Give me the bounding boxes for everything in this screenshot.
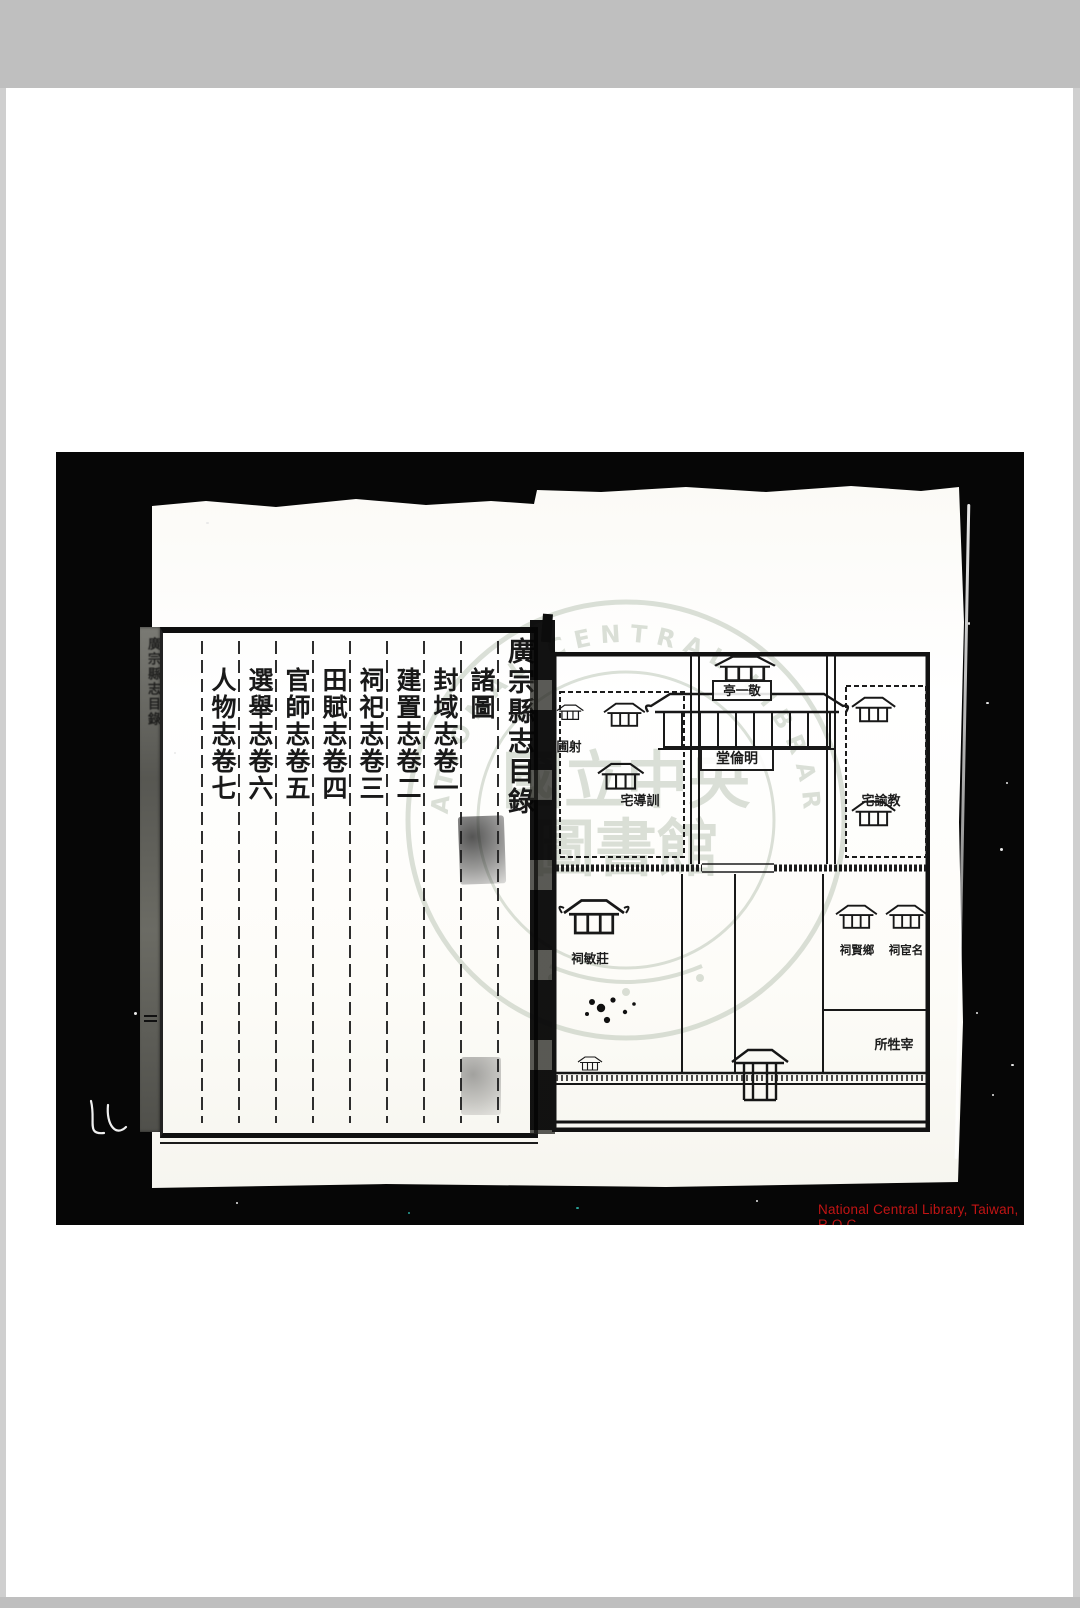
viewer-right-edge <box>1073 88 1080 1597</box>
dust-speck-cyan <box>408 1212 410 1214</box>
toc-entry: 諸圖 <box>463 667 499 721</box>
viewer-bottom-band <box>0 1597 1080 1608</box>
map-label-director-house: 宅諭教 <box>854 790 908 809</box>
dust-speck <box>206 522 209 524</box>
dust-speck <box>756 1200 758 1202</box>
spine-title-text: 廣宗縣志目錄 <box>143 637 161 727</box>
toc-entry: 祠祀志卷三 <box>352 667 388 802</box>
column-rule <box>201 641 203 1123</box>
viewer-page: NATIONAL CENTRAL LIBRARY 國立中央 圖書館 廣宗縣志目錄 <box>0 0 1080 1608</box>
toc-entry: 官師志卷五 <box>278 667 314 802</box>
viewer-left-edge <box>0 88 6 1597</box>
dust-speck <box>174 752 176 754</box>
spine-page-mark <box>144 1015 157 1017</box>
book-spine-strip: 廣宗縣志目錄 <box>140 627 162 1132</box>
dust-speck-cyan <box>576 1207 579 1209</box>
map-label-archery-ground: 圃射 <box>554 736 584 755</box>
map-label-xiangxian-shrine: 祠賢鄉 <box>832 942 882 958</box>
map-label-pavilion: 亭一敬 <box>712 680 772 701</box>
map-label-instructor-house: 宅導訓 <box>610 790 670 809</box>
dust-speck <box>236 1202 238 1204</box>
map-label-zhuangmin-shrine: 祠敏莊 <box>558 948 622 967</box>
toc-text-frame: 廣宗縣志目錄 諸圖 封域志卷一 建置志卷二 祠祀志卷三 田賦志卷四 官師志卷五 … <box>160 627 538 1138</box>
scanned-book-image: NATIONAL CENTRAL LIBRARY 國立中央 圖書館 廣宗縣志目錄 <box>56 452 1024 1225</box>
school-temple-map: 亭一敬 堂倫明 圃射 宅導訓 宅諭教 祠敏莊 祠賢鄉 祠宦名 所牲宰 <box>552 652 930 1132</box>
toc-entry: 選舉志卷六 <box>241 667 277 802</box>
map-label-minghuan-shrine: 祠宦名 <box>882 942 930 958</box>
ink-smudge <box>461 1057 501 1115</box>
dust-speck <box>992 1094 994 1096</box>
viewer-top-band <box>0 0 1080 88</box>
dust-speck <box>1006 782 1008 784</box>
ink-blotches <box>585 997 636 1023</box>
white-scratch-mark <box>84 1097 130 1145</box>
toc-entry: 建置志卷二 <box>389 667 425 802</box>
map-label-hall: 堂倫明 <box>700 748 774 771</box>
dust-speck <box>1011 1064 1014 1066</box>
map-drawing <box>552 652 930 1132</box>
dust-speck <box>976 1012 978 1014</box>
toc-entry: 田賦志卷四 <box>315 667 351 802</box>
cut-glyph-fragment <box>541 614 553 643</box>
library-credit-text: National Central Library, Taiwan, R.O.C. <box>818 1202 1024 1225</box>
dust-speck <box>986 702 989 704</box>
dust-speck <box>968 622 970 625</box>
map-label-slaughter-hall: 所牲宰 <box>862 1034 926 1053</box>
toc-entry: 人物志卷七 <box>204 667 240 802</box>
toc-entry: 封域志卷一 <box>426 667 462 802</box>
dust-speck <box>134 1012 137 1015</box>
dust-speck <box>1000 848 1003 851</box>
library-stamp-smudge <box>458 815 506 885</box>
